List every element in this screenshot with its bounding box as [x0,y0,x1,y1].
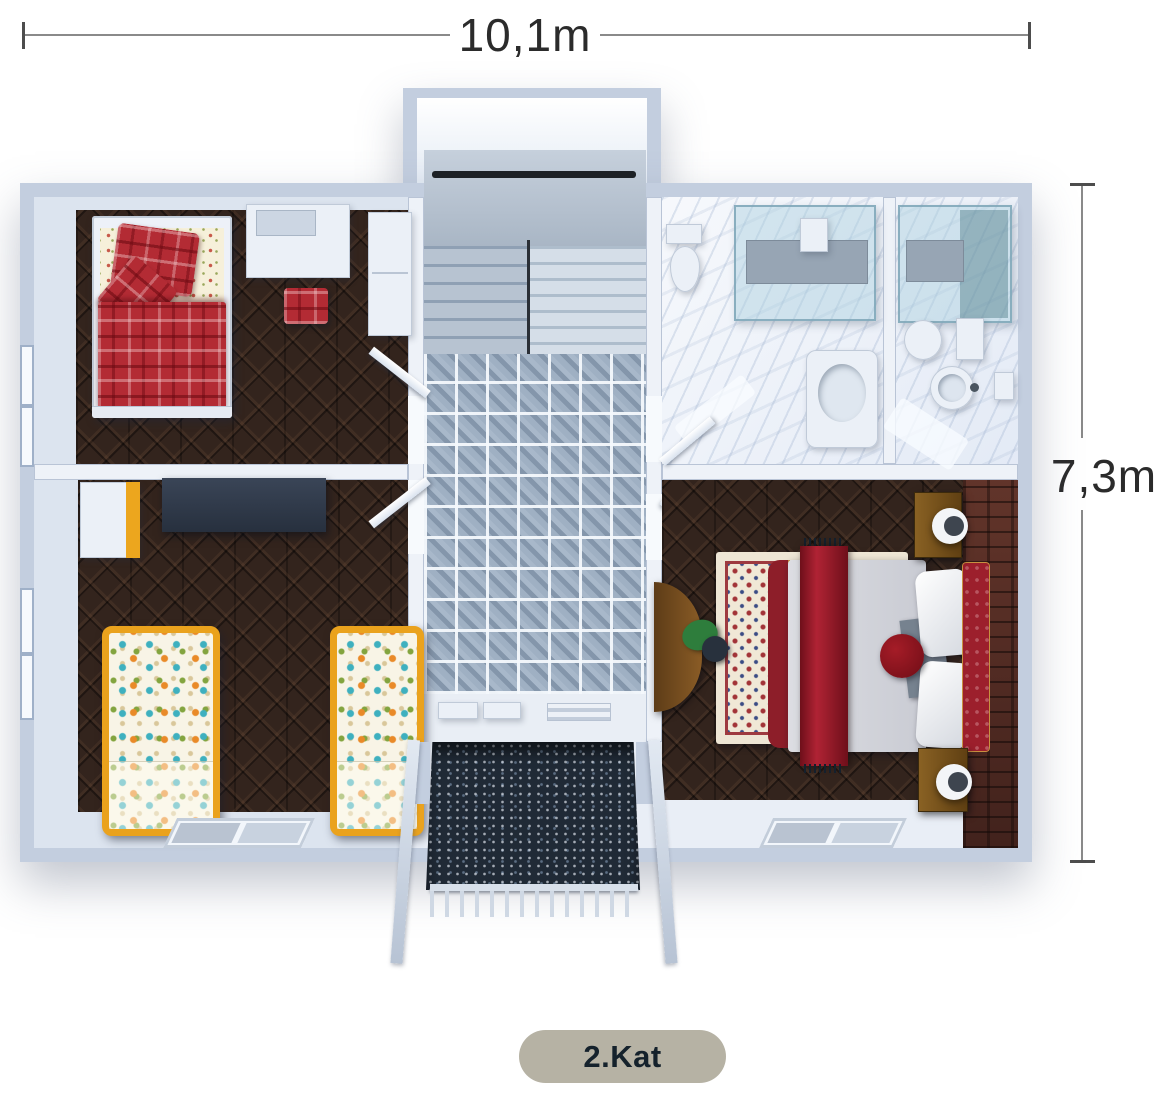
stair-flight-left [424,246,527,354]
hall-doormat-1 [438,702,478,719]
toilet-tank-bath2 [956,318,984,360]
hall-floor-grille [547,703,611,721]
master-bed-fringe-bottom [804,764,844,773]
stool-plaid [284,288,328,324]
round-sink-bowl-bath2 [938,374,966,402]
floor-window-master-pane-2 [831,823,898,843]
door-gap-child-room-1 [408,396,424,464]
stair-flight-divider [527,240,530,354]
bed-child-room-1 [92,216,232,418]
floor-window-pane-1 [171,823,240,843]
window-child-room-2-mullion [20,652,34,656]
wardrobe-child-room-1 [368,212,412,336]
balcony-fence-top-rail [430,884,638,891]
floorplan-canvas: 10,1m 7,3m [0,0,1176,1095]
stair-flight-right [530,246,646,354]
floor-window-master-bedroom [759,818,907,848]
width-dimension-label: 10,1m [450,8,600,62]
master-desk-stool-dark [702,636,728,662]
toilet-tank-bath1 [666,224,702,244]
height-dimension-bottom-tick [1070,860,1095,863]
cabinet-yellow-side [126,482,140,558]
door-gap-bathroom [646,396,662,462]
toilet-bowl-bath2 [904,320,942,360]
width-dimension-right-tick [1028,22,1031,49]
wardrobe-panel-line [372,272,408,274]
height-dimension-bottom-line [1081,510,1083,862]
floor-window-pane-2 [237,823,306,843]
sink-bowl-bath1 [818,364,866,422]
floor-badge: 2.Kat [519,1030,726,1083]
sink-drain-dot-bath2 [970,383,979,392]
desk-child-room-2 [162,478,326,532]
lamp-bottom [936,764,972,800]
floor-window-master-pane-1 [767,823,834,843]
hall-doormat-2 [483,702,521,719]
shower-glass-dark-bath2 [960,210,1008,318]
stair-upper-landing [424,150,646,246]
master-bed [768,556,992,756]
laptop-on-desk [256,210,316,236]
balcony-fence [430,884,638,920]
hall-tile-floor [424,354,646,694]
master-bed-headboard [962,562,990,752]
lamp-bottom-shade-opening [948,772,968,792]
master-bed-foot-rail [768,560,790,748]
lamp-top [932,508,968,544]
height-dimension-top-line [1081,186,1083,438]
right-rooms-divider-wall [662,464,1018,480]
balcony-fence-balusters [430,891,638,917]
bed-blanket-plaid [98,302,226,412]
stair-top-slot [432,171,636,178]
master-bed-round-cushion [880,634,924,678]
lamp-top-shade-opening [944,516,964,536]
width-dimension-left-line [25,34,450,36]
floor-badge-label: 2.Kat [583,1039,661,1075]
master-bed-red-runner [800,546,848,766]
floor-window-child-room-2 [163,818,315,848]
wall-shelf-bath2 [994,372,1014,400]
bed-footboard [92,406,232,418]
shower-fixture-box-bath1 [800,218,828,252]
height-dimension-label: 7,3m [1032,448,1176,504]
vanity-counter-bath2 [906,240,964,282]
window-child-room-1-mullion [20,404,34,408]
kids-bed-1 [102,626,220,836]
balcony-stair-ramp [426,742,640,890]
cabinet-child-room-2 [80,482,140,558]
width-dimension-right-line [600,34,1028,36]
